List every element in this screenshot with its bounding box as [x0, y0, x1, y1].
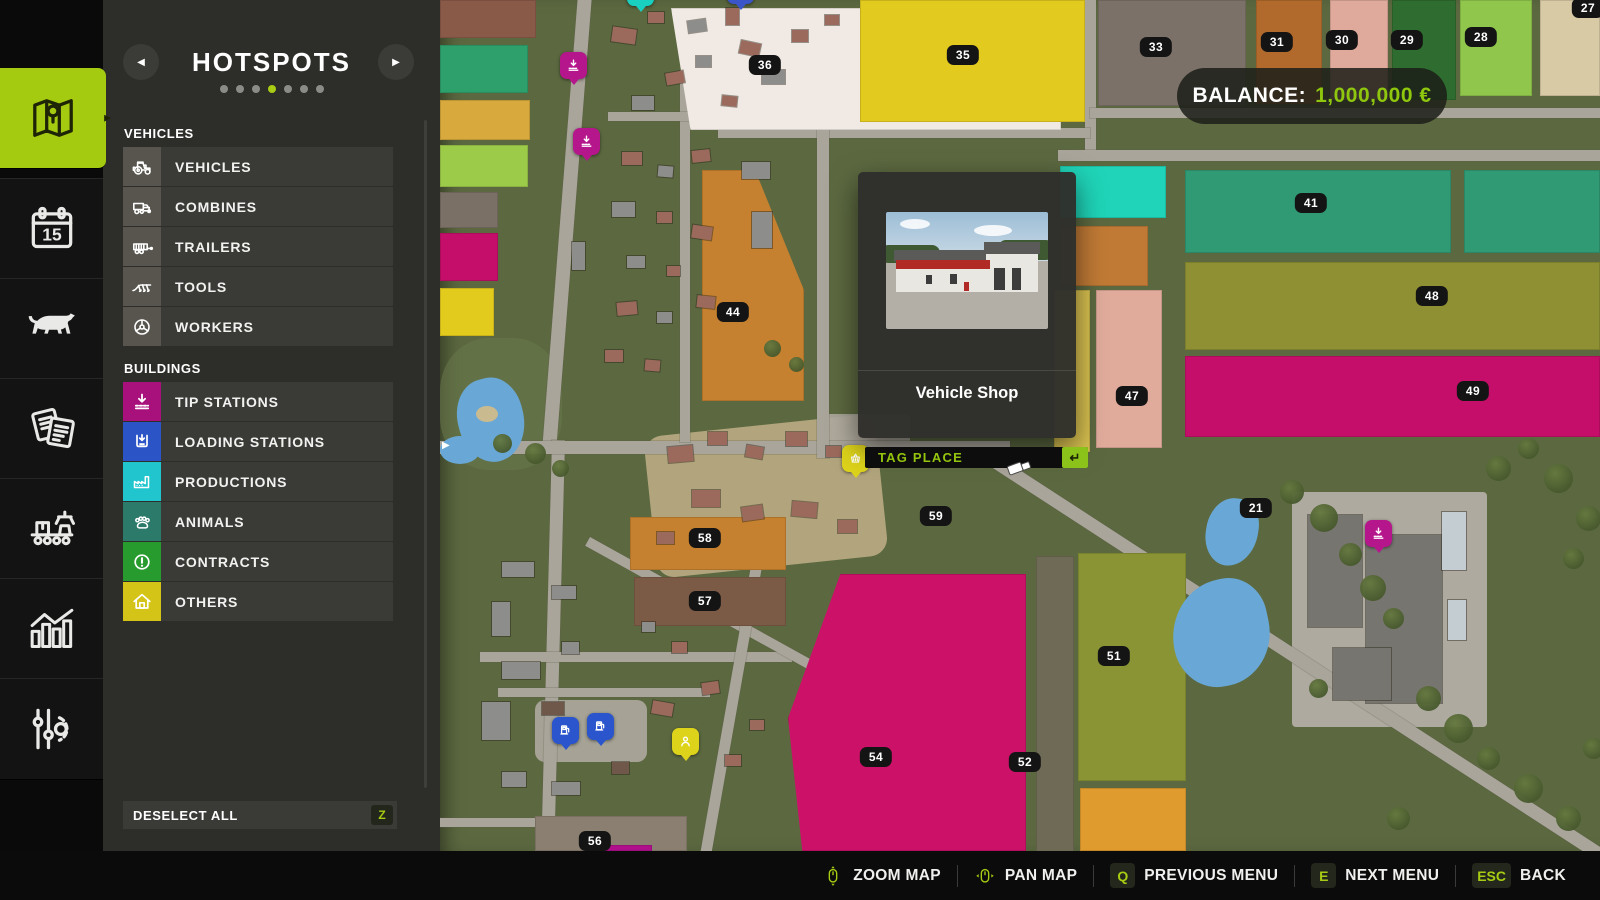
tree [493, 434, 512, 453]
filter-item-label: OTHERS [161, 594, 238, 610]
building [691, 149, 710, 163]
tag-place-bar[interactable]: TAG PLACE ↵ [865, 447, 1088, 468]
filter-sections: VEHICLESVEHICLESCOMBINESTRAILERSTOOLSWOR… [123, 126, 393, 622]
page-dot [268, 85, 276, 93]
tree [1544, 464, 1573, 493]
building [657, 532, 674, 544]
page-dot [252, 85, 260, 93]
map-field [1464, 170, 1600, 253]
cow-icon [24, 301, 80, 357]
paw-icon [123, 502, 161, 541]
field-label-33: 33 [1140, 37, 1172, 57]
map-field [440, 145, 528, 187]
tree [525, 443, 546, 464]
filter-item-vehicles[interactable]: VEHICLES [123, 147, 393, 186]
building [722, 95, 738, 107]
building [752, 212, 772, 248]
tree [1556, 806, 1581, 831]
key-badge-esc: ESC [1472, 863, 1511, 888]
steering-wheel-icon [123, 307, 161, 346]
hotspots-panel: ◀ HOTSPOTS ▶ VEHICLESVEHICLESCOMBINESTRA… [103, 0, 440, 851]
filter-item-workers[interactable]: WORKERS [123, 307, 393, 346]
building [542, 702, 564, 715]
hint-label: PAN MAP [1005, 867, 1077, 885]
building [786, 432, 807, 446]
road [680, 70, 690, 442]
tree [1309, 679, 1328, 698]
loading-station-icon [123, 422, 161, 461]
building [838, 520, 857, 533]
tree [1444, 714, 1473, 743]
trailer-icon [123, 227, 161, 266]
building [648, 12, 664, 23]
sidebar: ▶15 [0, 0, 103, 900]
shop-window [1012, 268, 1021, 290]
tip-station-icon [123, 382, 161, 421]
tree [764, 340, 781, 357]
map-field [440, 192, 498, 228]
svg-text:15: 15 [42, 225, 62, 245]
building [726, 8, 739, 25]
building [651, 700, 674, 716]
marker-tail [561, 744, 571, 750]
map-icon [25, 90, 81, 146]
shop-window [994, 268, 1005, 290]
vehicle-shop-photo [886, 212, 1048, 329]
marker-tail [736, 4, 746, 10]
field-label-56: 56 [579, 831, 611, 851]
shop-barrel [964, 282, 969, 291]
field-label-21: 21 [1240, 498, 1272, 518]
tree [789, 357, 804, 372]
building [1333, 648, 1391, 700]
popup-divider [858, 370, 1076, 371]
factory-icon [123, 462, 161, 501]
map-field [440, 233, 498, 281]
building [658, 165, 674, 177]
section-label: VEHICLES [124, 126, 393, 141]
filter-item-label: PRODUCTIONS [161, 474, 287, 490]
vehicle-shop-popup: Vehicle Shop [858, 172, 1076, 438]
building [552, 782, 580, 795]
building [572, 242, 585, 270]
sidebar-tab-settings[interactable] [0, 678, 103, 780]
filter-item-label: ANIMALS [161, 514, 244, 530]
building [612, 202, 635, 217]
building [502, 562, 534, 577]
tree [1383, 608, 1404, 629]
field-label-54: 54 [860, 747, 892, 767]
field-label-31: 31 [1261, 32, 1293, 52]
tree [1563, 548, 1584, 569]
balance-display: BALANCE: 1,000,000 € [1177, 68, 1447, 124]
filter-item-label: TIP STATIONS [161, 394, 279, 410]
balance-label: BALANCE: [1192, 84, 1306, 108]
dot-marker[interactable] [627, 0, 654, 6]
calendar-icon: 15 [24, 201, 80, 257]
marker-tail [569, 79, 579, 85]
tractor-icon [123, 147, 161, 186]
next-page-button[interactable]: ▶ [378, 44, 414, 80]
marker-tail [1374, 547, 1384, 553]
tree [1583, 738, 1600, 759]
map-field-51[interactable] [1078, 553, 1186, 781]
tree [1518, 438, 1539, 459]
building [741, 505, 764, 522]
filter-item-label: COMBINES [161, 199, 257, 215]
map-field [440, 288, 494, 336]
field-label-51: 51 [1098, 646, 1130, 666]
island [476, 406, 498, 422]
production-icon [24, 501, 80, 557]
building [657, 212, 672, 223]
map-field-47[interactable] [1096, 290, 1162, 448]
hint-label: BACK [1520, 867, 1566, 885]
building [708, 432, 727, 445]
hint-zoom-map[interactable]: ZOOM MAP [822, 864, 941, 888]
map-field-28[interactable] [1460, 0, 1532, 96]
building [691, 225, 713, 241]
statistics-icon [24, 601, 80, 657]
filter-item-contracts[interactable]: CONTRACTS [123, 542, 393, 581]
map-field [1080, 788, 1186, 851]
sidebar-tab-map[interactable]: ▶ [0, 68, 106, 169]
building [502, 662, 540, 679]
map-field-54[interactable] [788, 574, 1026, 851]
tree [1280, 480, 1304, 504]
filter-item-label: CONTRACTS [161, 554, 270, 570]
key-badge-q: Q [1110, 863, 1135, 888]
person-marker[interactable] [672, 728, 699, 755]
map-view[interactable]: 3635333130292827414849475152545857595644… [440, 0, 1600, 851]
marker-tail [596, 740, 606, 746]
field-label-49: 49 [1457, 381, 1489, 401]
building [612, 762, 629, 774]
separator [1294, 865, 1295, 887]
field-label-28: 28 [1465, 27, 1497, 47]
map-field [440, 0, 536, 38]
field-label-58: 58 [689, 528, 721, 548]
settings-icon [24, 701, 80, 757]
dot-marker[interactable] [727, 0, 754, 4]
building [696, 56, 711, 67]
field-label-57: 57 [689, 591, 721, 611]
tip-station-marker[interactable] [573, 128, 600, 155]
building [742, 162, 770, 179]
combine-icon [123, 187, 161, 226]
exclamation-icon [123, 542, 161, 581]
page-dot [316, 85, 324, 93]
field-label-27: 27 [1572, 0, 1600, 18]
building [696, 295, 715, 309]
building [605, 350, 623, 362]
tip-station-marker[interactable] [1365, 520, 1392, 547]
section-label: BUILDINGS [124, 361, 393, 376]
building [1448, 600, 1466, 640]
building [667, 266, 680, 276]
mouse-cursor-truck-icon [1005, 455, 1037, 479]
building [1442, 512, 1466, 570]
hint-pan-map[interactable]: PAN MAP [974, 864, 1077, 888]
page-dot [220, 85, 228, 93]
tree [1387, 807, 1410, 830]
filter-item-tools[interactable]: TOOLS [123, 267, 393, 306]
deselect-all-button[interactable]: DESELECT ALL Z [123, 801, 397, 829]
building [657, 312, 672, 323]
field-label-29: 29 [1391, 30, 1423, 50]
tree [552, 460, 569, 477]
building [622, 152, 642, 165]
field-label-48: 48 [1416, 286, 1448, 306]
hint-next-menu[interactable]: ENEXT MENU [1311, 863, 1439, 888]
enter-key-button[interactable]: ↵ [1062, 447, 1088, 468]
field-label-30: 30 [1326, 30, 1358, 50]
field-label-35: 35 [947, 45, 979, 65]
mouse-pan-icon [974, 864, 996, 888]
marker-tail [851, 472, 861, 478]
house-icon [123, 582, 161, 621]
field-label-47: 47 [1116, 386, 1148, 406]
page-dot [300, 85, 308, 93]
game-screen: 3635333130292827414849475152545857595644… [0, 0, 1600, 900]
building [791, 501, 817, 518]
tree [1477, 747, 1500, 770]
tip-station-marker[interactable] [560, 52, 587, 79]
field-label-52: 52 [1009, 752, 1041, 772]
panel-collapse-arrow-icon[interactable]: ▶ [442, 440, 450, 451]
field-label-44: 44 [717, 302, 749, 322]
cloud-decor [900, 219, 930, 229]
page-dot [236, 85, 244, 93]
hint-back[interactable]: ESCBACK [1472, 863, 1566, 888]
popup-title: Vehicle Shop [858, 384, 1076, 403]
road [1058, 150, 1600, 161]
sidebar-tab-statistics[interactable] [0, 578, 103, 680]
separator [1093, 865, 1094, 887]
building [645, 359, 661, 371]
building [667, 445, 693, 463]
map-field-49[interactable] [1185, 356, 1600, 437]
plow-icon [123, 267, 161, 306]
filter-item-combines[interactable]: COMBINES [123, 187, 393, 226]
building [552, 586, 576, 599]
map-field-48[interactable] [1185, 262, 1600, 350]
filter-item-label: WORKERS [161, 319, 254, 335]
shop-roof [984, 242, 1040, 254]
bottom-bar: ZOOM MAPPAN MAPQPREVIOUS MENUENEXT MENUE… [0, 851, 1600, 900]
building [687, 19, 706, 33]
building [825, 15, 839, 25]
filter-item-productions[interactable]: PRODUCTIONS [123, 462, 393, 501]
active-tab-arrow-icon: ▶ [104, 113, 111, 124]
tree [1310, 504, 1338, 532]
scrollbar[interactable] [424, 120, 427, 788]
building [692, 490, 720, 507]
building [826, 446, 841, 457]
page-dot [284, 85, 292, 93]
tree [1360, 575, 1386, 601]
field-label-41: 41 [1295, 193, 1327, 213]
sidebar-tab-contracts[interactable] [0, 378, 103, 480]
sidebar-tab-calendar[interactable]: 15 [0, 178, 103, 280]
filter-item-label: VEHICLES [161, 159, 251, 175]
hint-previous-menu[interactable]: QPREVIOUS MENU [1110, 863, 1278, 888]
building [562, 642, 579, 654]
map-field [440, 100, 530, 140]
building [672, 642, 687, 653]
gas-station-marker[interactable] [587, 713, 614, 740]
sidebar-tab-animals[interactable] [0, 278, 103, 380]
building [616, 301, 637, 316]
tree [1514, 774, 1543, 803]
field-label-59: 59 [920, 506, 952, 526]
building [701, 681, 720, 695]
page-dots [103, 85, 440, 93]
tree [1416, 686, 1441, 711]
gas-station-marker[interactable] [552, 717, 579, 744]
tree [1486, 456, 1511, 481]
filter-item-tip-stations[interactable]: TIP STATIONS [123, 382, 393, 421]
map-field-52[interactable] [1036, 556, 1074, 851]
filter-item-label: TOOLS [161, 279, 227, 295]
deselect-all-label: DESELECT ALL [123, 808, 371, 823]
filter-item-trailers[interactable]: TRAILERS [123, 227, 393, 266]
tree [1339, 543, 1362, 566]
hint-label: ZOOM MAP [853, 867, 941, 885]
field-label-36: 36 [749, 55, 781, 75]
tree [1576, 506, 1600, 531]
filter-item-label: TRAILERS [161, 239, 251, 255]
building [750, 720, 764, 730]
cloud-decor [974, 225, 1012, 236]
filter-item-loading-stations[interactable]: LOADING STATIONS [123, 422, 393, 461]
building [482, 702, 510, 740]
building [627, 256, 645, 268]
hint-label: NEXT MENU [1345, 867, 1439, 885]
building [725, 755, 741, 766]
filter-item-animals[interactable]: ANIMALS [123, 502, 393, 541]
building [642, 622, 655, 632]
building [492, 602, 510, 636]
shop-window [950, 274, 957, 284]
separator [957, 865, 958, 887]
road [498, 688, 710, 697]
shop-window [926, 275, 932, 284]
marker-tail [636, 6, 646, 12]
shop-sign-band [896, 260, 990, 269]
marker-tail [582, 155, 592, 161]
filter-item-label: LOADING STATIONS [161, 434, 325, 450]
hint-label: PREVIOUS MENU [1144, 867, 1278, 885]
filter-item-others[interactable]: OTHERS [123, 582, 393, 621]
building [502, 772, 526, 787]
papers-icon [24, 401, 80, 457]
map-field [440, 45, 528, 93]
building [632, 96, 654, 110]
building [611, 26, 637, 44]
mouse-zoom-icon [822, 864, 844, 888]
marker-tail [681, 755, 691, 761]
road [817, 128, 829, 458]
building [792, 30, 808, 42]
separator [1455, 865, 1456, 887]
key-badge-e: E [1311, 863, 1336, 888]
building [1308, 515, 1362, 627]
sidebar-tab-production[interactable] [0, 478, 103, 580]
z-key-badge: Z [371, 805, 393, 825]
balance-value: 1,000,000 € [1315, 84, 1431, 108]
